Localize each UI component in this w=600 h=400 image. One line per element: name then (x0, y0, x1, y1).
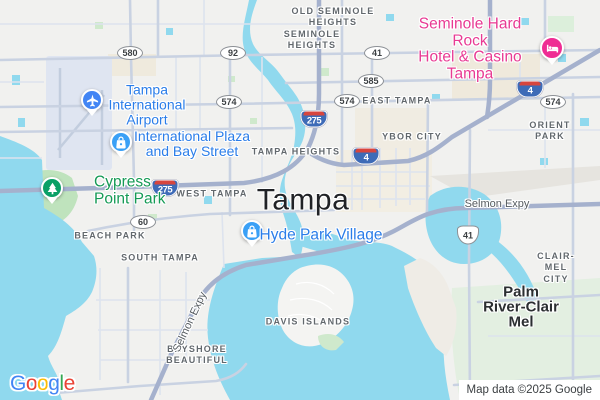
map-attribution: Map data ©2025 Google (459, 380, 600, 400)
shield-sr574-west: 574 (216, 95, 242, 109)
shield-us92: 92 (220, 46, 246, 60)
neighborhood-old-seminole-heights: OLD SEMINOLE HEIGHTS (292, 6, 375, 29)
tree-icon (46, 182, 59, 195)
shield-sr60: 60 (130, 215, 156, 229)
bed-icon (546, 43, 559, 54)
shield-sr574-east: 574 (540, 95, 566, 109)
shopping-bag-icon (115, 136, 127, 149)
neighborhood-ybor-city: YBOR CITY (382, 131, 442, 142)
shield-i4-downtown: 4 (353, 148, 380, 165)
poi-label-international-plaza[interactable]: International Plaza and Bay Street (134, 129, 250, 159)
map-canvas[interactable]: OLD SEMINOLE HEIGHTS SEMINOLE HEIGHTS EA… (0, 0, 600, 400)
poi-label-cypress-point-park[interactable]: Cypress Point Park (94, 174, 166, 207)
airport-grounds (46, 56, 112, 170)
neighborhood-seminole-heights: SEMINOLE HEIGHTS (284, 29, 341, 52)
hard-rock-hotel-pin[interactable] (540, 36, 564, 60)
shield-us41-north: 41 (364, 46, 390, 60)
road-us41 (469, 130, 470, 400)
shield-sr580: 580 (117, 46, 143, 60)
neighborhood-east-tampa: EAST TAMPA (362, 95, 431, 106)
neighborhood-west-tampa: WEST TAMPA (176, 188, 247, 199)
shield-i275: 275 (301, 111, 328, 128)
google-logo[interactable]: Google (10, 372, 75, 396)
neighborhood-orient-park: ORIENT PARK (525, 120, 575, 143)
shopping-bag-icon (246, 225, 258, 238)
airplane-icon (86, 94, 99, 107)
international-plaza-pin[interactable] (110, 131, 132, 153)
poi-label-seminole-hard-rock[interactable]: Seminole Hard Rock Hotel & Casino Tampa (405, 17, 535, 84)
airport-pin[interactable] (81, 89, 103, 111)
poi-label-tampa-international-airport[interactable]: Tampa International Airport (108, 82, 185, 127)
shield-sr574-mid: 574 (334, 94, 360, 108)
neighborhood-davis-islands: DAVIS ISLANDS (266, 316, 350, 327)
neighborhood-beach-park: BEACH PARK (74, 230, 145, 241)
shield-sr585: 585 (358, 74, 384, 88)
locality-label-palm-river-clair-mel: Palm River-Clair Mel (483, 285, 559, 330)
road-label-selmon-expy: Selmon Expy (465, 198, 530, 210)
neighborhood-clair-mel-city: CLAIR-MEL CITY (534, 251, 578, 285)
neighborhood-tampa-heights: TAMPA HEIGHTS (252, 146, 340, 157)
city-label-tampa: Tampa (257, 184, 350, 216)
cypress-point-park-pin[interactable] (41, 177, 63, 199)
neighborhood-south-tampa: SOUTH TAMPA (121, 252, 199, 263)
poi-label-hyde-park-village[interactable]: Hyde Park Village (260, 228, 383, 245)
